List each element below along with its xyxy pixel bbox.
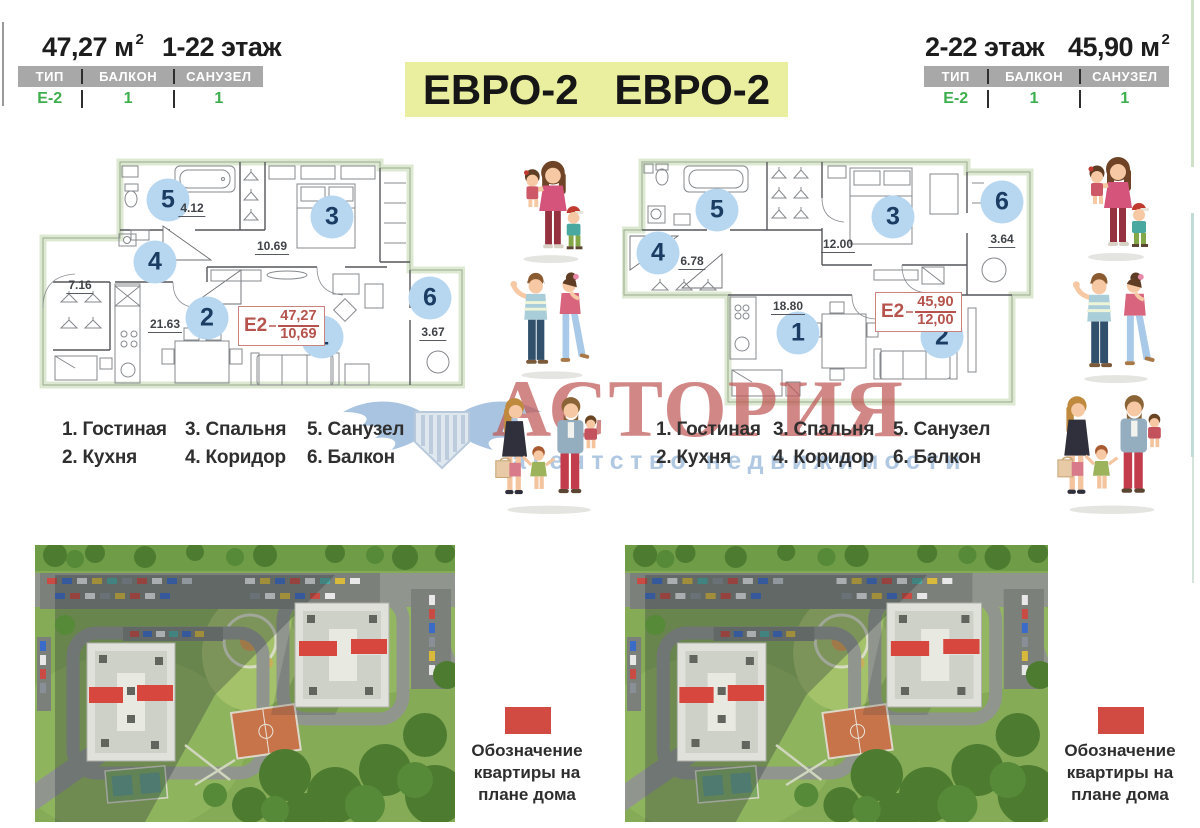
area-value: 47,27 м — [42, 32, 134, 62]
spec-header-row: ТИП БАЛКОН САНУЗЕЛ — [18, 66, 263, 87]
caption-line: плане дома — [452, 784, 602, 806]
legend-item: 3. Спальня — [773, 419, 874, 441]
spec-header-bathroom: САНУЗЕЛ — [175, 69, 263, 84]
page-edge-line — [1191, 0, 1194, 167]
left-unit-floors: 1-22 этаж — [162, 32, 281, 63]
legend-item: 6. Балкон — [307, 447, 404, 469]
legend-item: 4. Коридор — [773, 447, 874, 469]
apartment-mark-caption: Обозначение квартиры на плане дома — [452, 740, 602, 806]
family-illustration-family-shopping — [478, 394, 620, 514]
dim-balcony: 3.67 — [419, 325, 446, 341]
spec-value-row: Е-2 1 1 — [924, 87, 1169, 111]
page-edge-line — [2, 22, 4, 106]
spec-value-bathroom: 1 — [175, 90, 263, 108]
floor-plan-left: 1 2 3 4 5 6 4.12 7.16 10.69 21.63 3.67 Е… — [35, 158, 465, 398]
room-number-corridor: 4 — [134, 241, 177, 284]
unit-tag-total-area: 45,90 — [915, 295, 955, 313]
page-edge-line — [1191, 213, 1194, 457]
caption-line: квартиры на — [452, 762, 602, 784]
family-illustration-mom-kids — [498, 156, 604, 264]
spec-value-balcony: 1 — [989, 90, 1080, 108]
legend-item: 3. Спальня — [185, 419, 286, 441]
dim-corridor: 6.78 — [678, 254, 705, 270]
left-spec-table: ТИП БАЛКОН САНУЗЕЛ Е-2 1 1 — [18, 66, 263, 111]
room-legend-left: 1. Гостиная 2. Кухня 3. Спальня 4. Корид… — [62, 419, 462, 475]
unit-tag-type: Е2 — [244, 315, 267, 337]
unit-tag-total-area: 47,27 — [278, 309, 318, 327]
legend-item: 5. Санузел — [893, 419, 990, 441]
apartment-mark-swatch — [1098, 707, 1144, 734]
room-number-corridor: 4 — [637, 232, 680, 275]
spec-value-balcony: 1 — [83, 90, 174, 108]
site-aerial-photo-right — [625, 545, 1048, 822]
family-illustration-couple — [1060, 270, 1172, 384]
unit-tag: Е2 45,90 12,00 — [875, 292, 962, 332]
spec-header-bathroom: САНУЗЕЛ — [1081, 69, 1169, 84]
caption-line: Обозначение — [1045, 740, 1195, 762]
dim-kitchen: 18.80 — [771, 299, 805, 315]
family-illustration-mom-kids — [1062, 152, 1170, 262]
spec-header-balcony: БАЛКОН — [83, 69, 174, 84]
plan-type-left: ЕВРО-2 — [423, 66, 579, 114]
room-number-bedroom: 3 — [311, 196, 354, 239]
spec-header-type: ТИП — [924, 69, 989, 84]
site-aerial-photo-left — [35, 545, 455, 822]
right-unit-area: 45,90 м2 — [1068, 32, 1169, 63]
spec-value-type: Е-2 — [924, 90, 989, 108]
unit-tag-living-area: 12,00 — [917, 313, 953, 329]
legend-item: 1. Гостиная — [656, 419, 761, 441]
spec-header-row: ТИП БАЛКОН САНУЗЕЛ — [924, 66, 1169, 87]
spec-value-bathroom: 1 — [1081, 90, 1169, 108]
room-number-bedroom: 3 — [872, 196, 915, 239]
plan-type-right: ЕВРО-2 — [614, 66, 770, 114]
dim-bathroom: 4.12 — [178, 201, 205, 217]
legend-item: 6. Балкон — [893, 447, 990, 469]
area-sup: 2 — [1162, 31, 1170, 48]
plan-type-banner: ЕВРО-2 ЕВРО-2 — [405, 62, 788, 117]
apartment-mark-swatch — [505, 707, 551, 734]
spec-header-balcony: БАЛКОН — [989, 69, 1080, 84]
caption-line: плане дома — [1045, 784, 1195, 806]
room-number-balcony: 6 — [981, 181, 1024, 224]
dim-bedroom: 12.00 — [821, 237, 855, 253]
legend-item: 2. Кухня — [656, 447, 761, 469]
brochure-page: { "units": { "left": { "area": "47,27 м"… — [0, 0, 1200, 828]
page-edge-line — [1192, 457, 1194, 583]
dim-corridor: 7.16 — [66, 278, 93, 294]
family-illustration-couple — [496, 270, 608, 380]
room-number-bathroom: 5 — [696, 189, 739, 232]
room-number-living: 1 — [777, 312, 820, 355]
legend-item: 1. Гостиная — [62, 419, 167, 441]
dim-kitchen: 21.63 — [148, 317, 182, 333]
spec-value-type: Е-2 — [18, 90, 83, 108]
apartment-mark-caption: Обозначение квартиры на плане дома — [1045, 740, 1195, 806]
caption-line: Обозначение — [452, 740, 602, 762]
legend-item: 2. Кухня — [62, 447, 167, 469]
dim-balcony: 3.64 — [988, 232, 1015, 248]
unit-tag-living-area: 10,69 — [280, 327, 316, 343]
area-sup: 2 — [136, 31, 144, 48]
family-illustration-family-shopping — [1048, 392, 1176, 514]
caption-line: квартиры на — [1045, 762, 1195, 784]
area-value: 45,90 м — [1068, 32, 1160, 62]
unit-tag: Е2 47,27 10,69 — [238, 306, 325, 346]
spec-value-row: Е-2 1 1 — [18, 87, 263, 111]
floor-plan-left-drawing — [35, 158, 465, 398]
right-unit-floors: 2-22 этаж — [925, 32, 1044, 63]
unit-tag-dash — [269, 325, 276, 327]
legend-item: 5. Санузел — [307, 419, 404, 441]
unit-tag-type: Е2 — [881, 301, 904, 323]
legend-item: 4. Коридор — [185, 447, 286, 469]
right-spec-table: ТИП БАЛКОН САНУЗЕЛ Е-2 1 1 — [924, 66, 1169, 111]
room-number-kitchen: 2 — [186, 297, 229, 340]
unit-tag-dash — [906, 311, 913, 313]
room-number-balcony: 6 — [409, 277, 452, 320]
dim-bedroom: 10.69 — [255, 239, 289, 255]
room-legend-right: 1. Гостиная 2. Кухня 3. Спальня 4. Корид… — [656, 419, 1056, 475]
spec-header-type: ТИП — [18, 69, 83, 84]
left-unit-area: 47,27 м2 — [42, 32, 143, 63]
